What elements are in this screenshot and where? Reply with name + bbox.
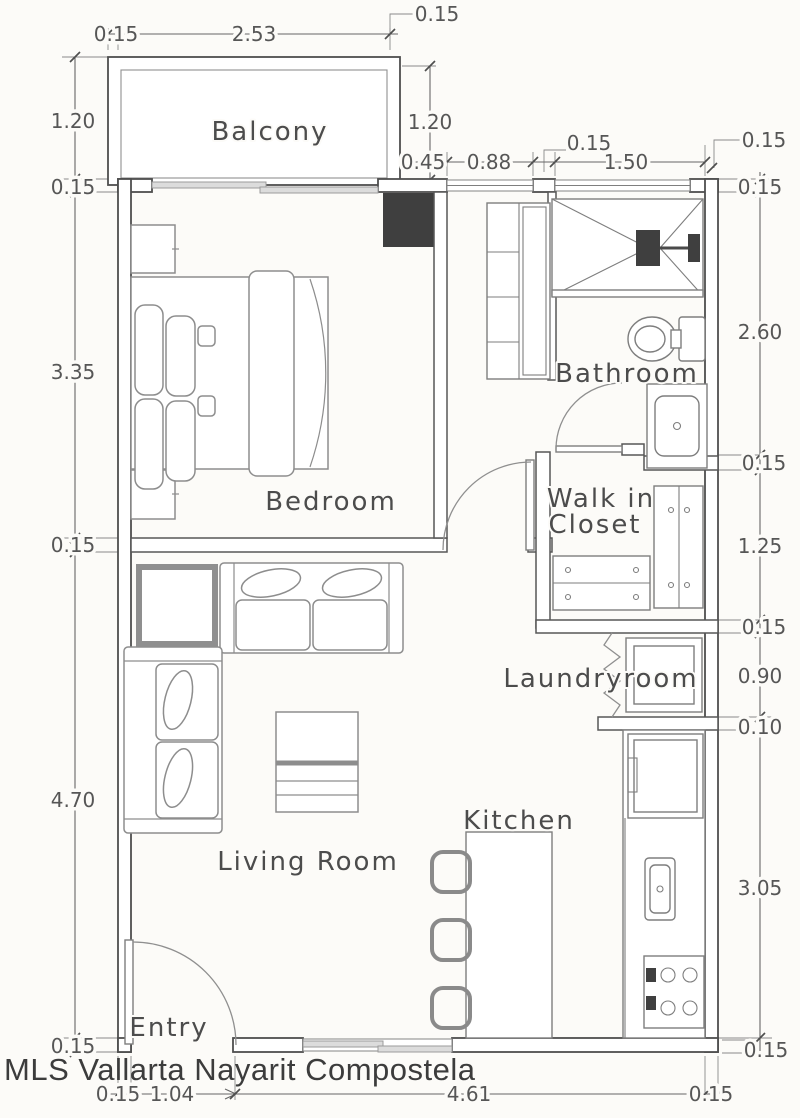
closet-west-wall [536,452,550,628]
dim-closet-height: 1.25 [738,534,783,558]
fridge [628,734,703,818]
stove [644,956,704,1028]
dim-right-wall-top: 0.15 [742,128,787,152]
dim-bottom-right-wall: 0.15 [689,1082,734,1106]
throw-blanket [249,271,294,476]
bedroom-east-wall [434,192,447,538]
label-bedroom: Bedroom [265,487,397,517]
balcony-slider-pane [152,182,266,188]
accent-pillow [198,396,215,416]
dim-kitchen-height: 3.05 [738,876,783,900]
label-entry: Entry [129,1013,208,1043]
label-laundry: Laundryroom [503,664,698,694]
balcony-slider-pane [260,187,378,193]
dim-top-leader: 0.15 [415,2,460,26]
dim-left-wall-top: 0.15 [51,175,96,199]
label-living: Living Room [217,847,399,877]
dim-bedroom-width: 3.35 [51,360,96,384]
shower [552,199,703,297]
label-walkin-line2: Closet [548,510,641,540]
kitchen-fixtures [432,730,705,1038]
dim-right-bottom-wall: 0.15 [744,1038,789,1062]
sofa-top [220,563,403,653]
wardrobe [654,486,703,608]
pillow [135,305,163,395]
bedroom-hall-door [443,460,534,550]
living-furniture [124,563,403,833]
watermark-text: MLS Vallarta Nayarit Compostela [4,1052,476,1087]
bed [131,271,328,489]
dim-column-width: 0.45 [401,150,446,174]
label-balcony: Balcony [211,117,328,147]
hall-closet [487,203,550,379]
pillow [135,399,163,489]
vanity-sink [647,384,707,468]
pillow [166,316,195,396]
floor-plan: Balcony Bedroom Bathroom Walk in Closet … [0,0,800,1118]
label-bathroom: Bathroom [555,359,699,389]
dim-balcony-depth-left: 1.20 [51,109,96,133]
closet-laundry-wall [536,620,718,633]
bedroom-living-wall [131,538,447,552]
bath-door-stub [622,444,644,455]
sink [645,858,675,920]
dim-laundry-height: 0.90 [738,664,783,688]
dim-balcony-depth-right: 1.20 [408,110,453,134]
bathroom-door [556,383,622,452]
shower-glass [552,290,703,297]
stool [432,852,470,892]
dim-right-top-wall: 0.15 [738,175,783,199]
dim-divider-wall: 0.15 [51,533,96,557]
pillow [166,401,195,481]
nightstand [131,225,175,273]
dim-top-balcony-wall: 0.15 [94,22,139,46]
laundry-kitchen-wall [598,717,718,730]
label-kitchen: Kitchen [463,806,575,836]
accent-pillow [198,326,215,346]
bedroom-furniture [131,225,328,519]
dim-closet-laundry-wall: 0.15 [742,615,787,639]
toilet [628,317,705,361]
floor-plan-canvas: Balcony Bedroom Bathroom Walk in Closet … [0,0,800,1118]
bar-stools [432,852,470,1028]
stool [432,988,470,1028]
coffee-table [276,712,358,812]
dim-window-small: 0.88 [467,150,512,174]
dim-living-width: 4.70 [51,788,96,812]
dim-window-large: 1.50 [604,150,649,174]
dim-top-balcony-width: 2.53 [232,22,277,46]
stool [432,920,470,960]
side-table [139,567,215,644]
drawer-unit [553,556,650,610]
kitchen-island [466,832,552,1038]
dim-laundry-thin-wall: 0.10 [738,715,783,739]
dim-bath-closet-wall: 0.15 [742,451,787,475]
sofa-left [124,647,222,833]
bathroom-fixtures [552,199,707,468]
dim-bathroom-height: 2.60 [738,320,783,344]
